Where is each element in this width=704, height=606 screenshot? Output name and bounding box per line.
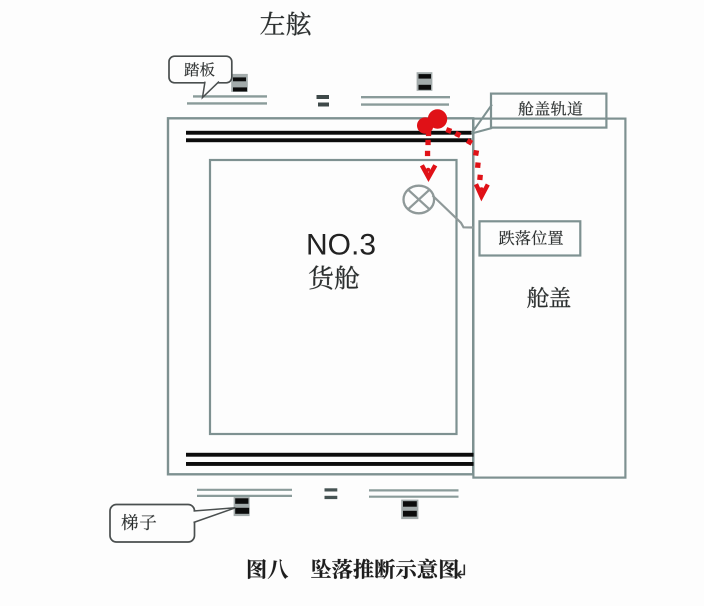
svg-text:NO.3: NO.3 [306,229,376,262]
